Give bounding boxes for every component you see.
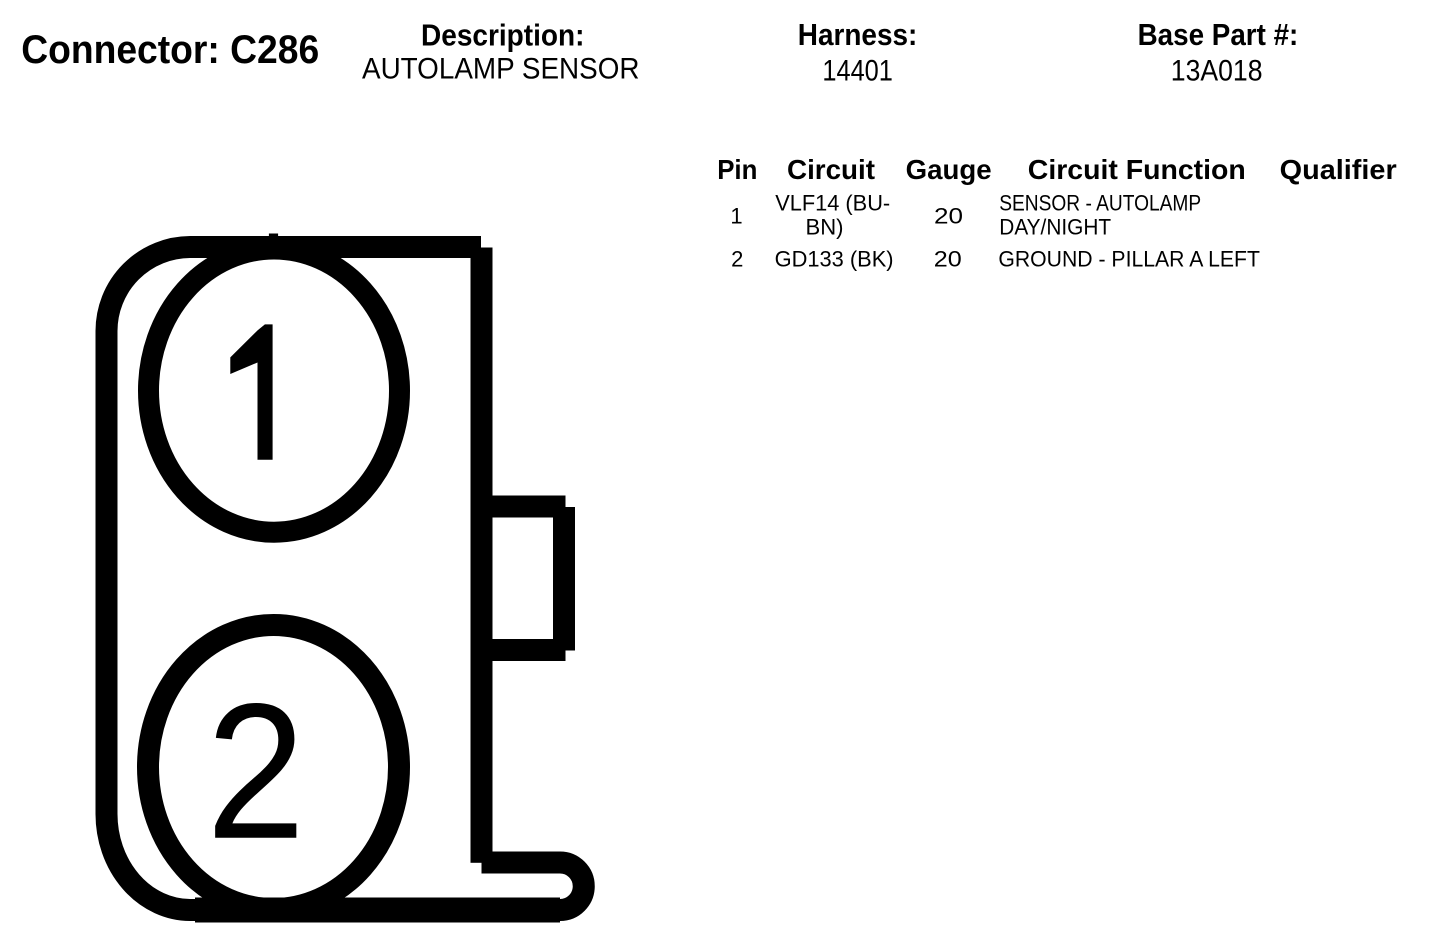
svg-text:13A018: 13A018 (1171, 54, 1263, 87)
svg-text:GROUND - PILLAR A LEFT: GROUND - PILLAR A LEFT (998, 246, 1260, 271)
svg-text:Pin: Pin (717, 154, 757, 185)
svg-text:SENSOR - AUTOLAMP: SENSOR - AUTOLAMP (999, 191, 1201, 216)
svg-text:Gauge: Gauge (906, 154, 992, 185)
svg-text:AUTOLAMP SENSOR: AUTOLAMP SENSOR (362, 53, 640, 86)
svg-text:2: 2 (731, 246, 743, 271)
svg-text:Harness:: Harness: (798, 17, 918, 52)
svg-text:BN): BN) (806, 215, 844, 240)
svg-text:14401: 14401 (822, 54, 893, 87)
svg-text:Circuit Function: Circuit Function (1028, 154, 1246, 185)
svg-text:1: 1 (730, 204, 742, 229)
svg-text:VLF14 (BU-: VLF14 (BU- (775, 191, 890, 216)
svg-text:Connector: C286: Connector: C286 (21, 28, 319, 72)
svg-text:20: 20 (934, 204, 963, 229)
svg-text:DAY/NIGHT: DAY/NIGHT (999, 215, 1111, 240)
svg-text:GD133 (BK): GD133 (BK) (775, 246, 894, 271)
svg-text:2: 2 (206, 664, 305, 879)
svg-text:Circuit: Circuit (787, 154, 875, 185)
svg-text:Description:: Description: (421, 17, 585, 52)
svg-text:20: 20 (934, 246, 962, 271)
svg-text:Qualifier: Qualifier (1280, 154, 1397, 185)
svg-text:Base Part #:: Base Part #: (1138, 17, 1299, 52)
